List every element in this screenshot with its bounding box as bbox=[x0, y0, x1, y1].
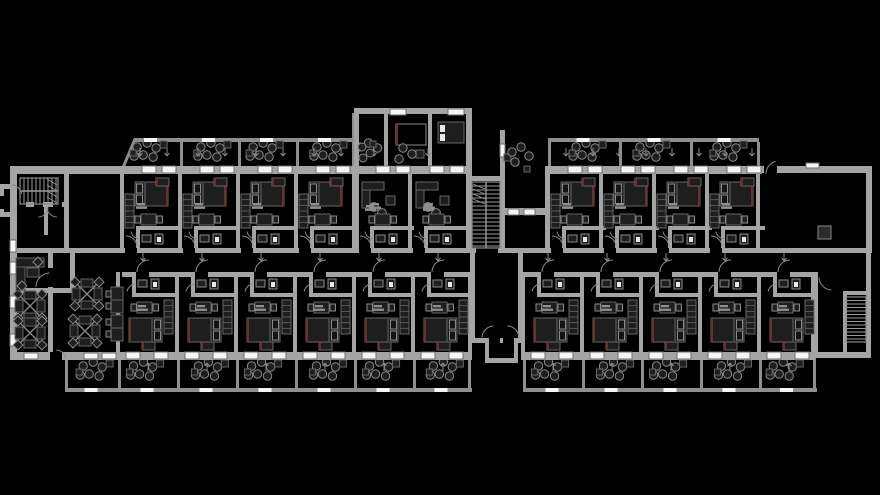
office-desk-pod bbox=[13, 316, 47, 350]
floor-plan-canvas bbox=[0, 0, 880, 495]
floor-plan bbox=[0, 0, 880, 495]
office-desk-pod bbox=[70, 277, 104, 311]
background bbox=[0, 0, 880, 495]
office-desk-pod bbox=[68, 314, 102, 348]
